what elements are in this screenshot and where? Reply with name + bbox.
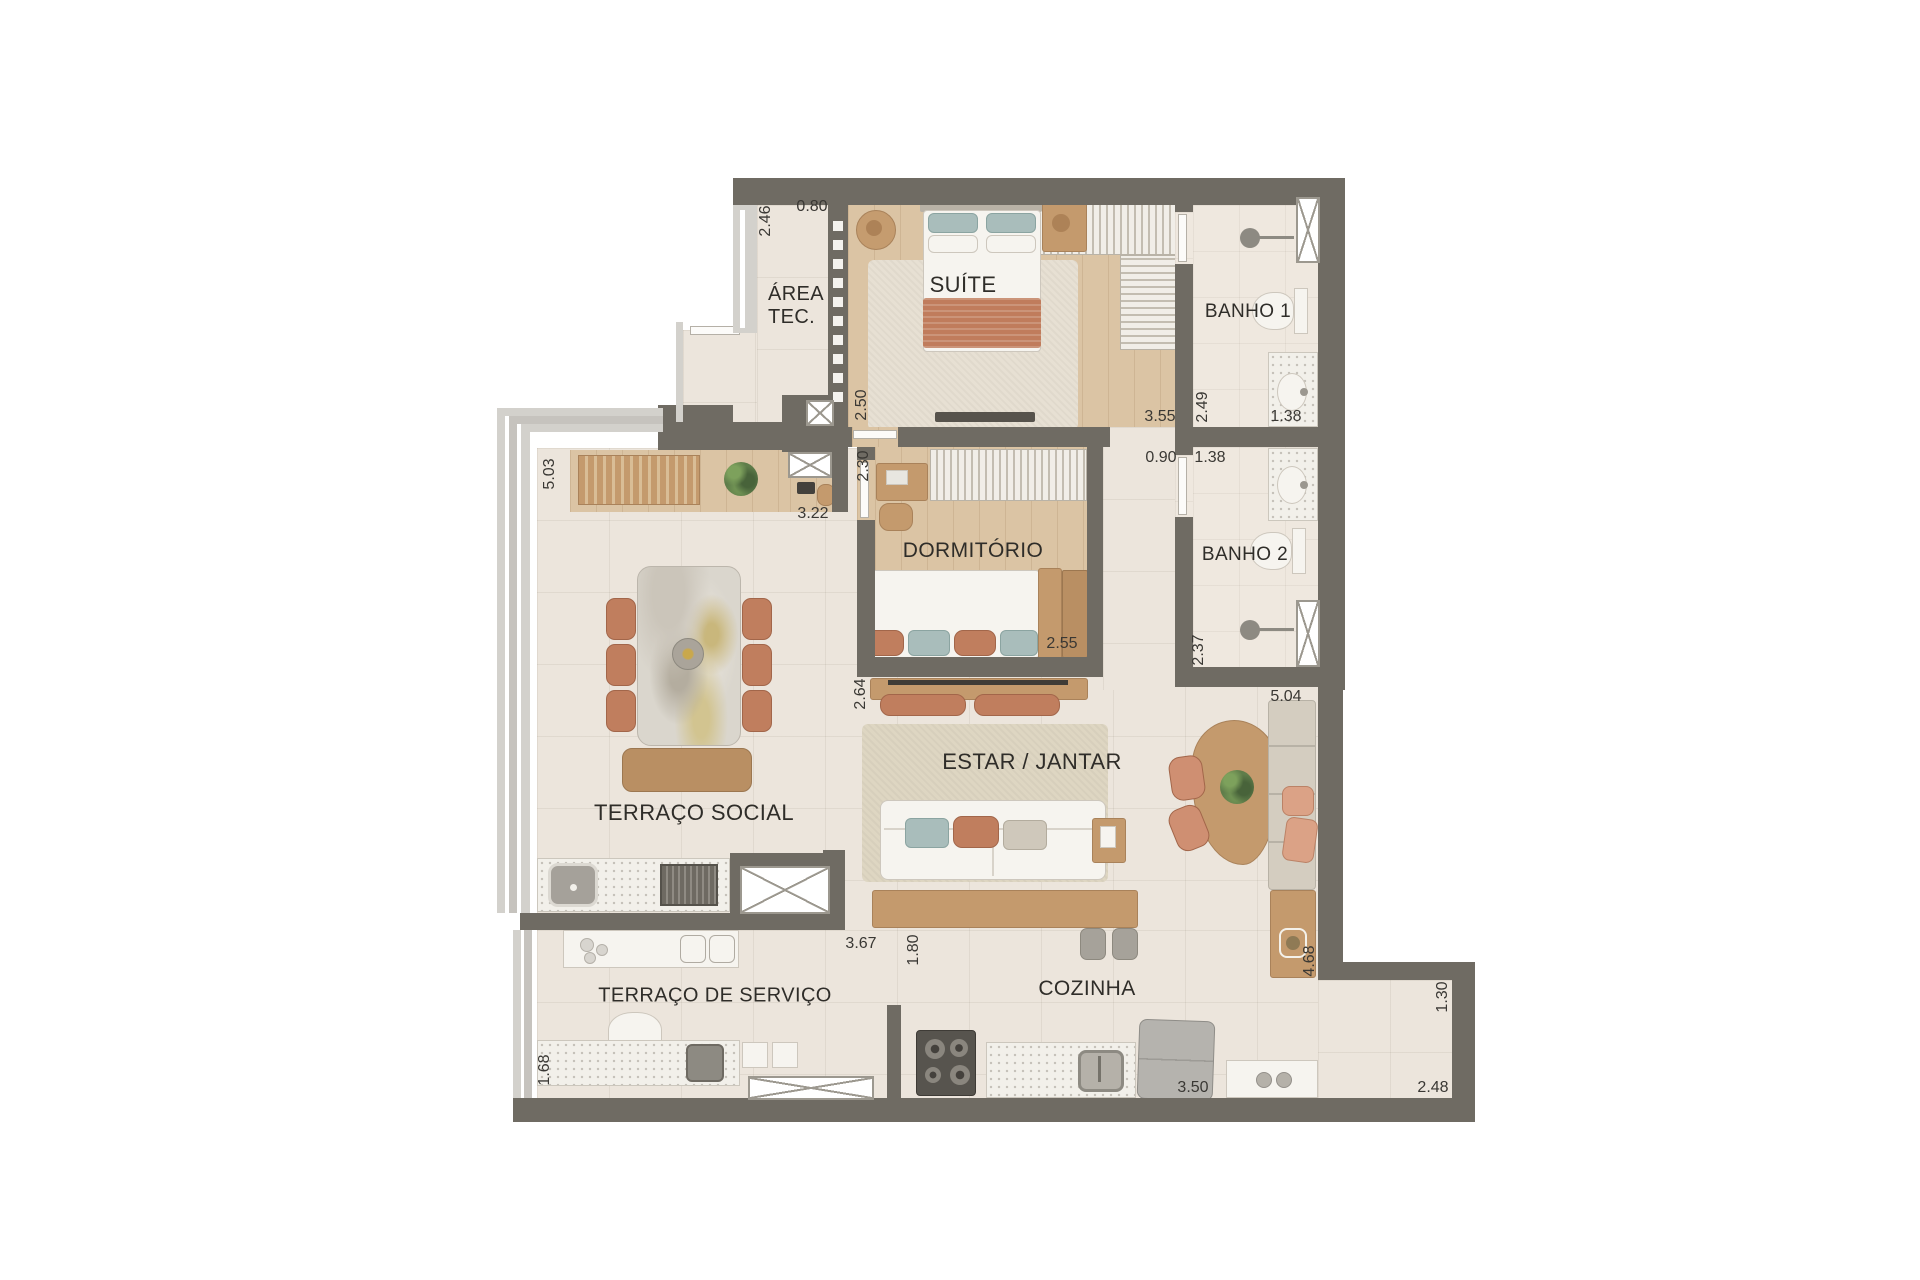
dimension-5-03: 5.03 xyxy=(541,458,559,489)
dimension-1-38: 1.38 xyxy=(1194,449,1225,467)
dimension-3-55: 3.55 xyxy=(1144,408,1175,426)
dimension-0-80: 0.80 xyxy=(796,198,827,216)
dimension-2-46: 2.46 xyxy=(757,205,775,236)
dimension-3-50: 3.50 xyxy=(1177,1079,1208,1097)
dimension-2-37: 2.37 xyxy=(1190,634,1208,665)
dimension-1-38: 1.38 xyxy=(1270,408,1301,426)
dimension-4-68: 4.68 xyxy=(1301,945,1319,976)
dimension-2-30: 2.30 xyxy=(855,450,873,481)
dimension-2-55: 2.55 xyxy=(1046,635,1077,653)
dimension-2-49: 2.49 xyxy=(1194,391,1212,422)
dimension-3-67: 3.67 xyxy=(845,935,876,953)
floor-plan-canvas: ÁREA TEC.SUÍTEBANHO 1DORMITÓRIOBANHO 2TE… xyxy=(0,0,1920,1280)
dimension-5-04: 5.04 xyxy=(1270,688,1301,706)
dimension-1-30: 1.30 xyxy=(1434,981,1452,1012)
dimension-1-68: 1.68 xyxy=(536,1054,554,1085)
dimensions-layer: 2.460.802.503.552.491.380.901.382.303.22… xyxy=(0,0,1920,1280)
dimension-0-90: 0.90 xyxy=(1145,449,1176,467)
dimension-2-50: 2.50 xyxy=(853,389,871,420)
dimension-2-48: 2.48 xyxy=(1417,1079,1448,1097)
dimension-2-64: 2.64 xyxy=(852,678,870,709)
dimension-1-80: 1.80 xyxy=(905,934,923,965)
dimension-3-22: 3.22 xyxy=(797,505,828,523)
